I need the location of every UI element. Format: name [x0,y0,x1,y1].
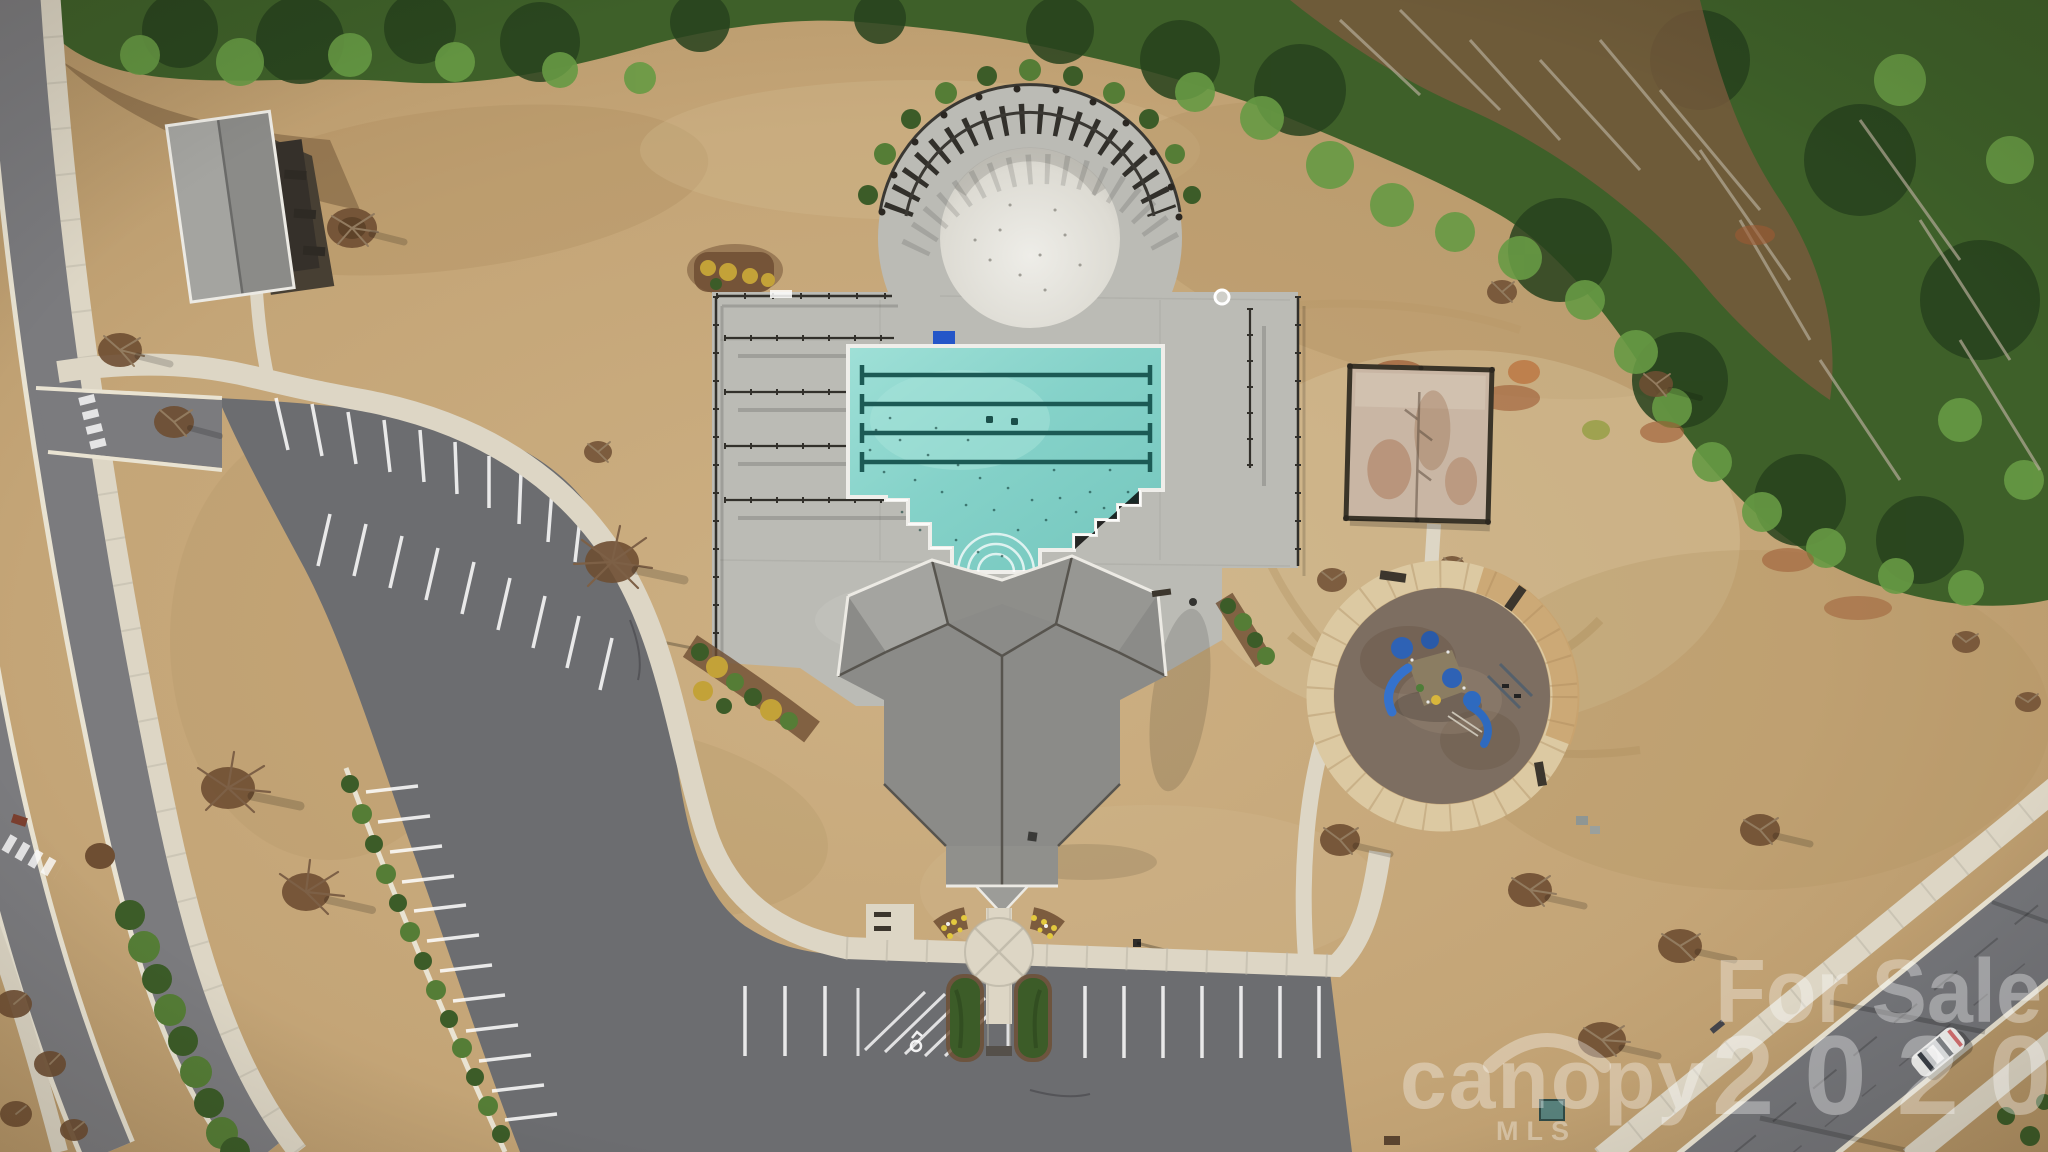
watermark-mls: MLS [1496,1116,1577,1146]
aerial-photo-canvas: For Sale canopy MLS 2020 [0,0,2048,1152]
watermark-year: 2020 [1712,1013,2048,1138]
aerial-photo: For Sale canopy MLS 2020 [0,0,2048,1152]
